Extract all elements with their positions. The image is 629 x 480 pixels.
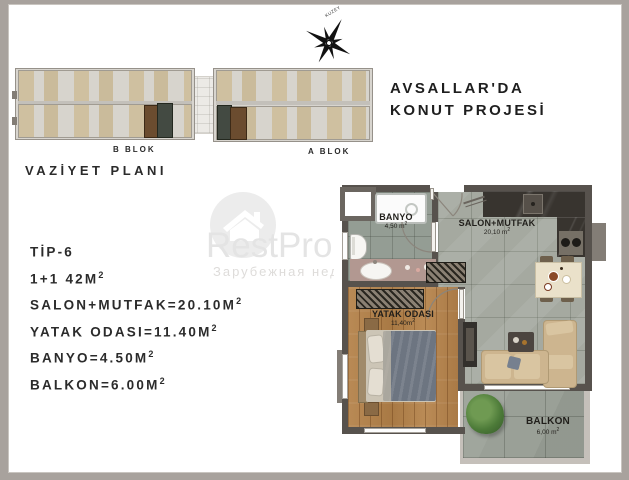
balcony-wall-bottom [461, 458, 590, 464]
dining-table [535, 262, 582, 298]
coffee-table [508, 332, 534, 352]
faucet [373, 260, 377, 264]
block-b-label: B BLOK [113, 145, 156, 154]
spec-line: YATAK ODASI=11.40M2 [30, 317, 241, 344]
block-b-highlight-unit-dark [157, 103, 173, 138]
table-decor [560, 267, 563, 270]
plant [466, 394, 504, 434]
spec-line: SALON+MUTFAK=20.10M2 [30, 290, 241, 317]
stove [559, 231, 583, 255]
spec-text: SALON+MUTFAK=20.10M [30, 298, 236, 313]
stove-burner [572, 238, 581, 247]
kitchen-counter-right [557, 217, 585, 257]
site-plan-block-a [213, 68, 373, 142]
spec-sup: 2 [160, 376, 165, 386]
spec-line: BALKON=6.00M2 [30, 370, 241, 397]
block-a-highlight-unit-brown [230, 107, 247, 140]
kitchen-counter-top [483, 191, 585, 217]
unit-specs: TİP-6 1+1 42M2 SALON+MUTFAK=20.10M2 YATA… [30, 237, 241, 396]
room-area-value: 11,40m [391, 321, 412, 328]
entrance-door-leaf [430, 188, 434, 200]
room-area-sup: 2 [405, 221, 408, 227]
plate [548, 271, 559, 282]
room-area-sup: 2 [557, 427, 560, 433]
exterior-pillar [592, 223, 606, 261]
block-a-label: A BLOK [308, 147, 350, 156]
sink [360, 262, 392, 280]
room-area: 6,00 m2 [513, 428, 583, 437]
coffee-table-decor [522, 340, 527, 345]
compass-rose-icon [298, 12, 360, 74]
bedroom-window-ledge [337, 350, 342, 403]
spec-line: TİP-6 [30, 237, 241, 264]
bathroom-window [342, 232, 348, 260]
bed-sheet-fold [383, 331, 391, 401]
bedroom-door-leaf [459, 289, 464, 319]
sofa-cushion [545, 320, 573, 336]
site-plan-title: VAZİYET PLANI [25, 163, 167, 178]
spec-line: 1+1 42M2 [30, 264, 241, 291]
tv-unit [463, 322, 477, 367]
bedroom-window-bottom [364, 428, 426, 433]
room-area: 20,10 m2 [442, 228, 552, 237]
living-room-label: SALON+MUTFAK 20,10 m2 [442, 218, 552, 237]
spec-sup: 2 [148, 349, 153, 359]
project-title: AVSALLAR'DA KONUT PROJESİ [390, 78, 546, 122]
block-b-ledge [12, 117, 17, 125]
coffee-table-decor [513, 337, 519, 343]
room-name: BALKON [513, 416, 583, 428]
room-area-value: 6,00 m [537, 429, 557, 436]
balcony-label: BALKON 6,00 m2 [513, 416, 583, 436]
spec-text: YATAK ODASI=11.40M [30, 324, 212, 339]
block-b-upper-units [18, 70, 192, 102]
block-b-ledge [12, 91, 17, 99]
toiletry [416, 268, 420, 272]
room-area-value: 4,50 m [385, 224, 405, 231]
room-name: YATAK ODASI [353, 309, 453, 319]
spec-sup: 2 [212, 323, 217, 333]
spec-sup: 2 [98, 270, 103, 280]
bedroom-window-left [342, 354, 348, 399]
wall-right [585, 185, 592, 389]
bathroom-vanity [350, 259, 436, 281]
plate [544, 283, 552, 291]
wall-bathroom-bedroom [342, 281, 438, 287]
plate [562, 275, 571, 284]
toilet-tank [352, 237, 355, 255]
tv-screen [466, 328, 474, 361]
document-page: RestProperty Зарубежная недвижимость KUZ… [8, 4, 622, 473]
toiletry [405, 265, 410, 270]
hallway-closet [426, 262, 466, 283]
spec-text: 1+1 42M [30, 271, 98, 286]
stove-burner [561, 238, 570, 247]
room-area-sup: 2 [412, 318, 415, 324]
bedroom-closet [356, 289, 424, 309]
room-area: 11,40m2 [353, 319, 453, 328]
spec-text: BALKON=6.00M [30, 377, 160, 392]
spec-sup: 2 [236, 296, 241, 306]
room-area: 4,50 m2 [358, 222, 434, 231]
block-a-upper-units [216, 70, 370, 102]
block-a-corridor [216, 101, 370, 105]
bedroom-label: YATAK ODASI 11,40m2 [353, 309, 453, 328]
room-name: BANYO [358, 212, 434, 222]
entrance-opening [430, 185, 464, 192]
bed [366, 330, 436, 402]
site-plan-block-b [15, 68, 195, 140]
balcony-wall-right [584, 391, 590, 464]
project-title-line2: KONUT PROJESİ [390, 100, 546, 122]
spec-line: BANYO=4.50M2 [30, 343, 241, 370]
apartment-floor-plan: BANYO 4,50 m2 SALON+MUTFAK 20,10 m2 YATA… [334, 174, 614, 470]
spec-text: BANYO=4.50M [30, 351, 148, 366]
nightstand [364, 402, 379, 416]
room-name: SALON+MUTFAK [442, 218, 552, 228]
bathroom-label: BANYO 4,50 m2 [358, 212, 434, 231]
room-area-sup: 2 [507, 227, 510, 233]
kitchen-sink-drain [531, 202, 535, 206]
spec-text: TİP-6 [30, 245, 74, 260]
project-title-line1: AVSALLAR'DA [390, 78, 546, 100]
sofa-cushion [546, 355, 573, 369]
kitchen-sink [523, 194, 543, 214]
room-area-value: 20,10 m [484, 230, 508, 237]
sofa-bottom-wing [481, 350, 549, 384]
